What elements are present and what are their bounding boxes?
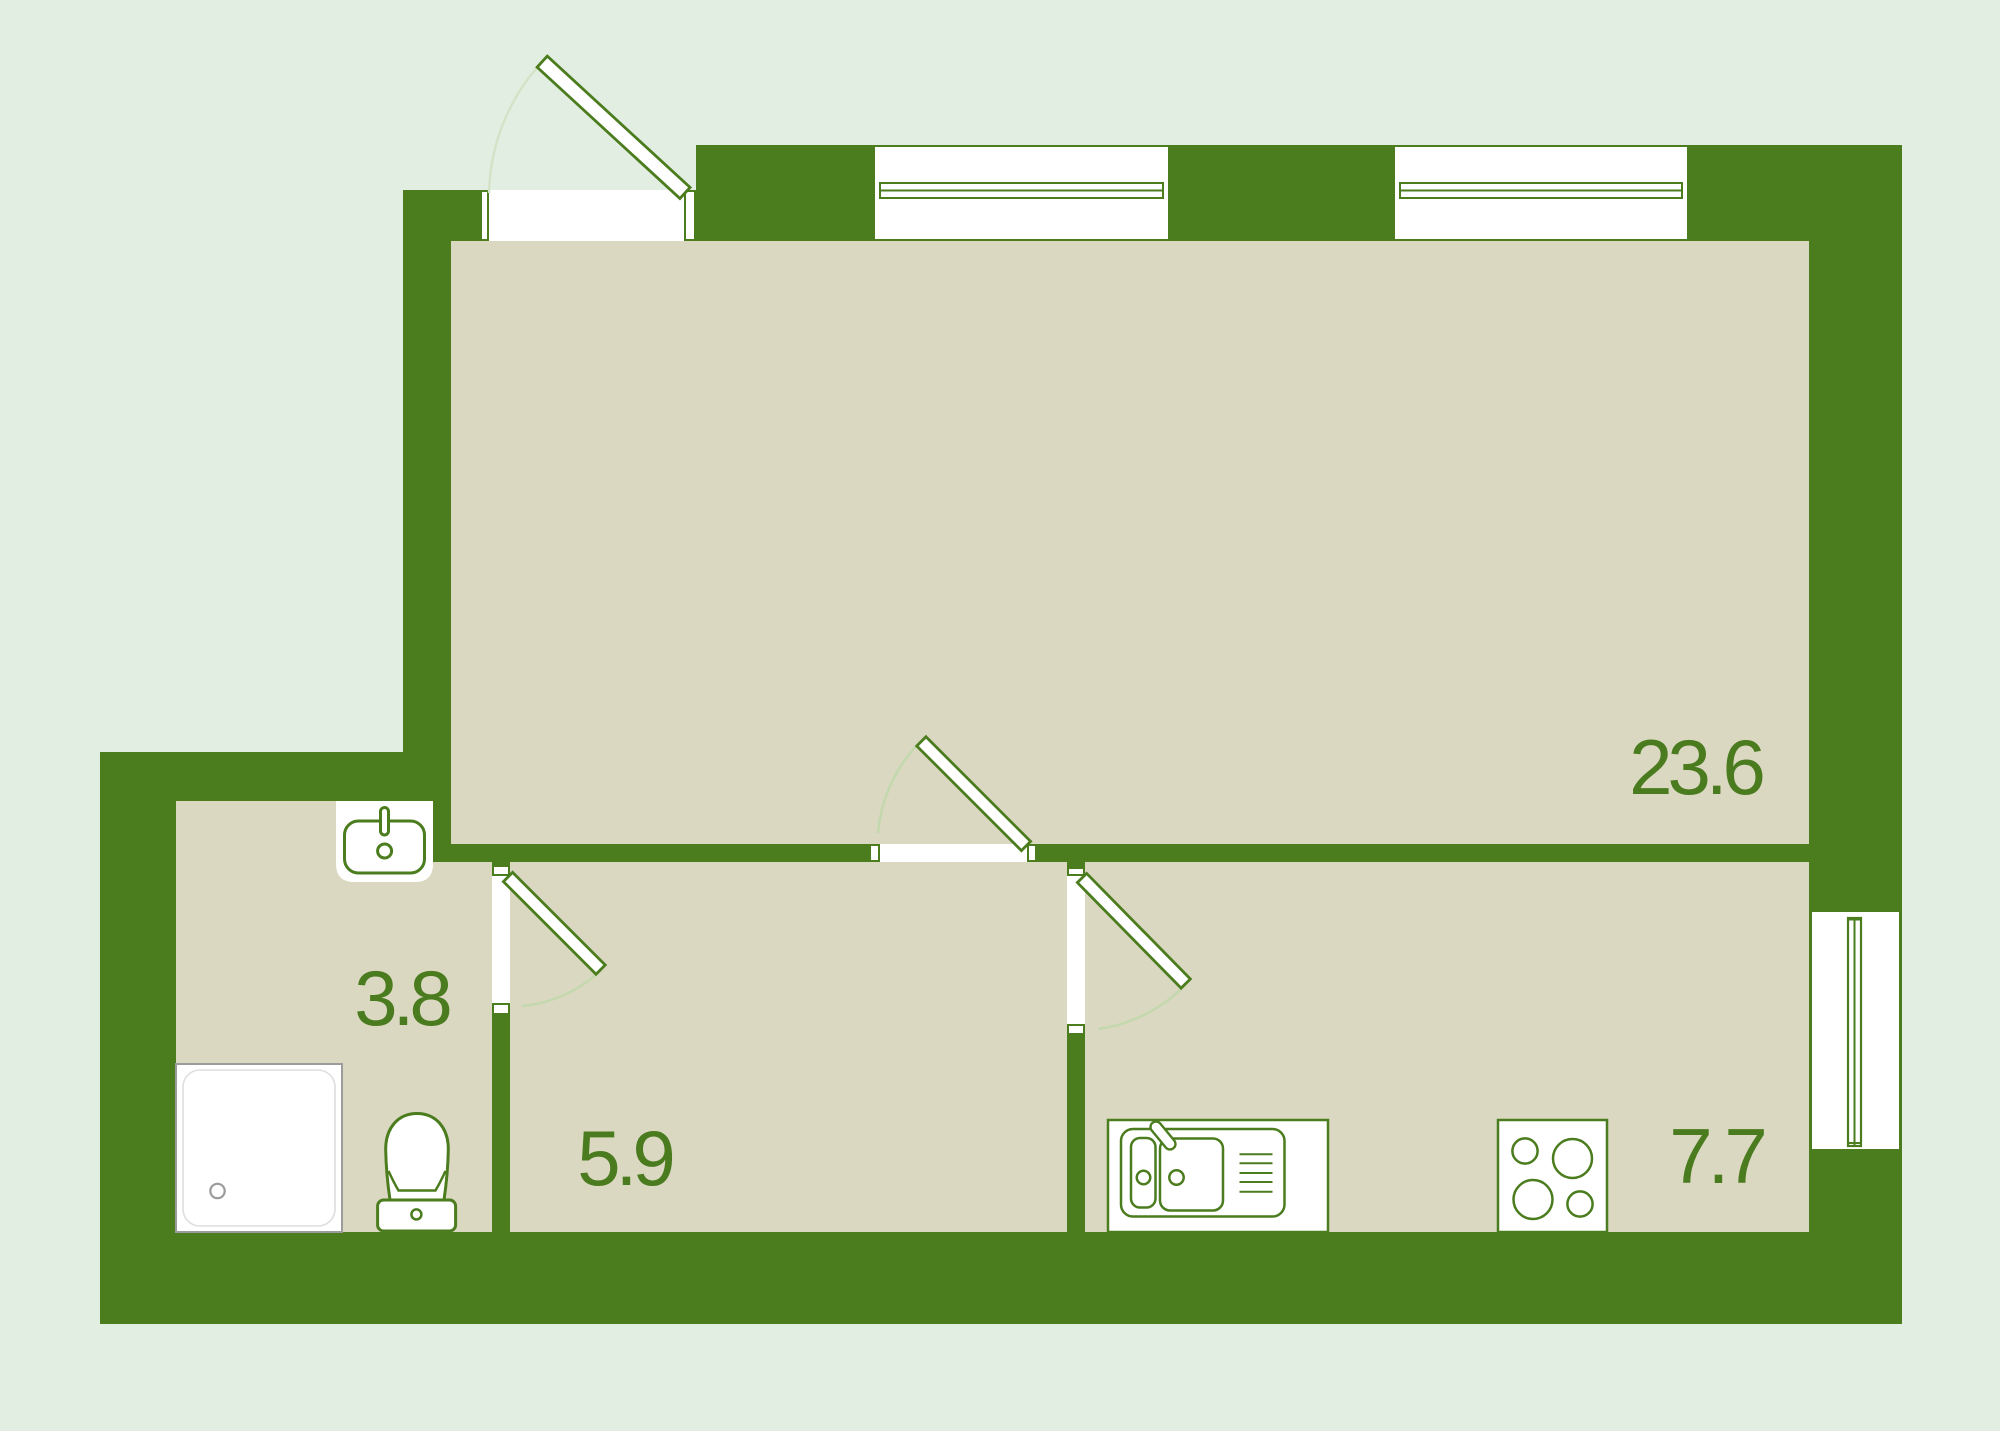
svg-text:3.8: 3.8 bbox=[354, 954, 449, 1042]
svg-text:5.9: 5.9 bbox=[577, 1114, 672, 1202]
svg-text:23.6: 23.6 bbox=[1629, 723, 1762, 811]
svg-text:7.7: 7.7 bbox=[1669, 1112, 1764, 1200]
